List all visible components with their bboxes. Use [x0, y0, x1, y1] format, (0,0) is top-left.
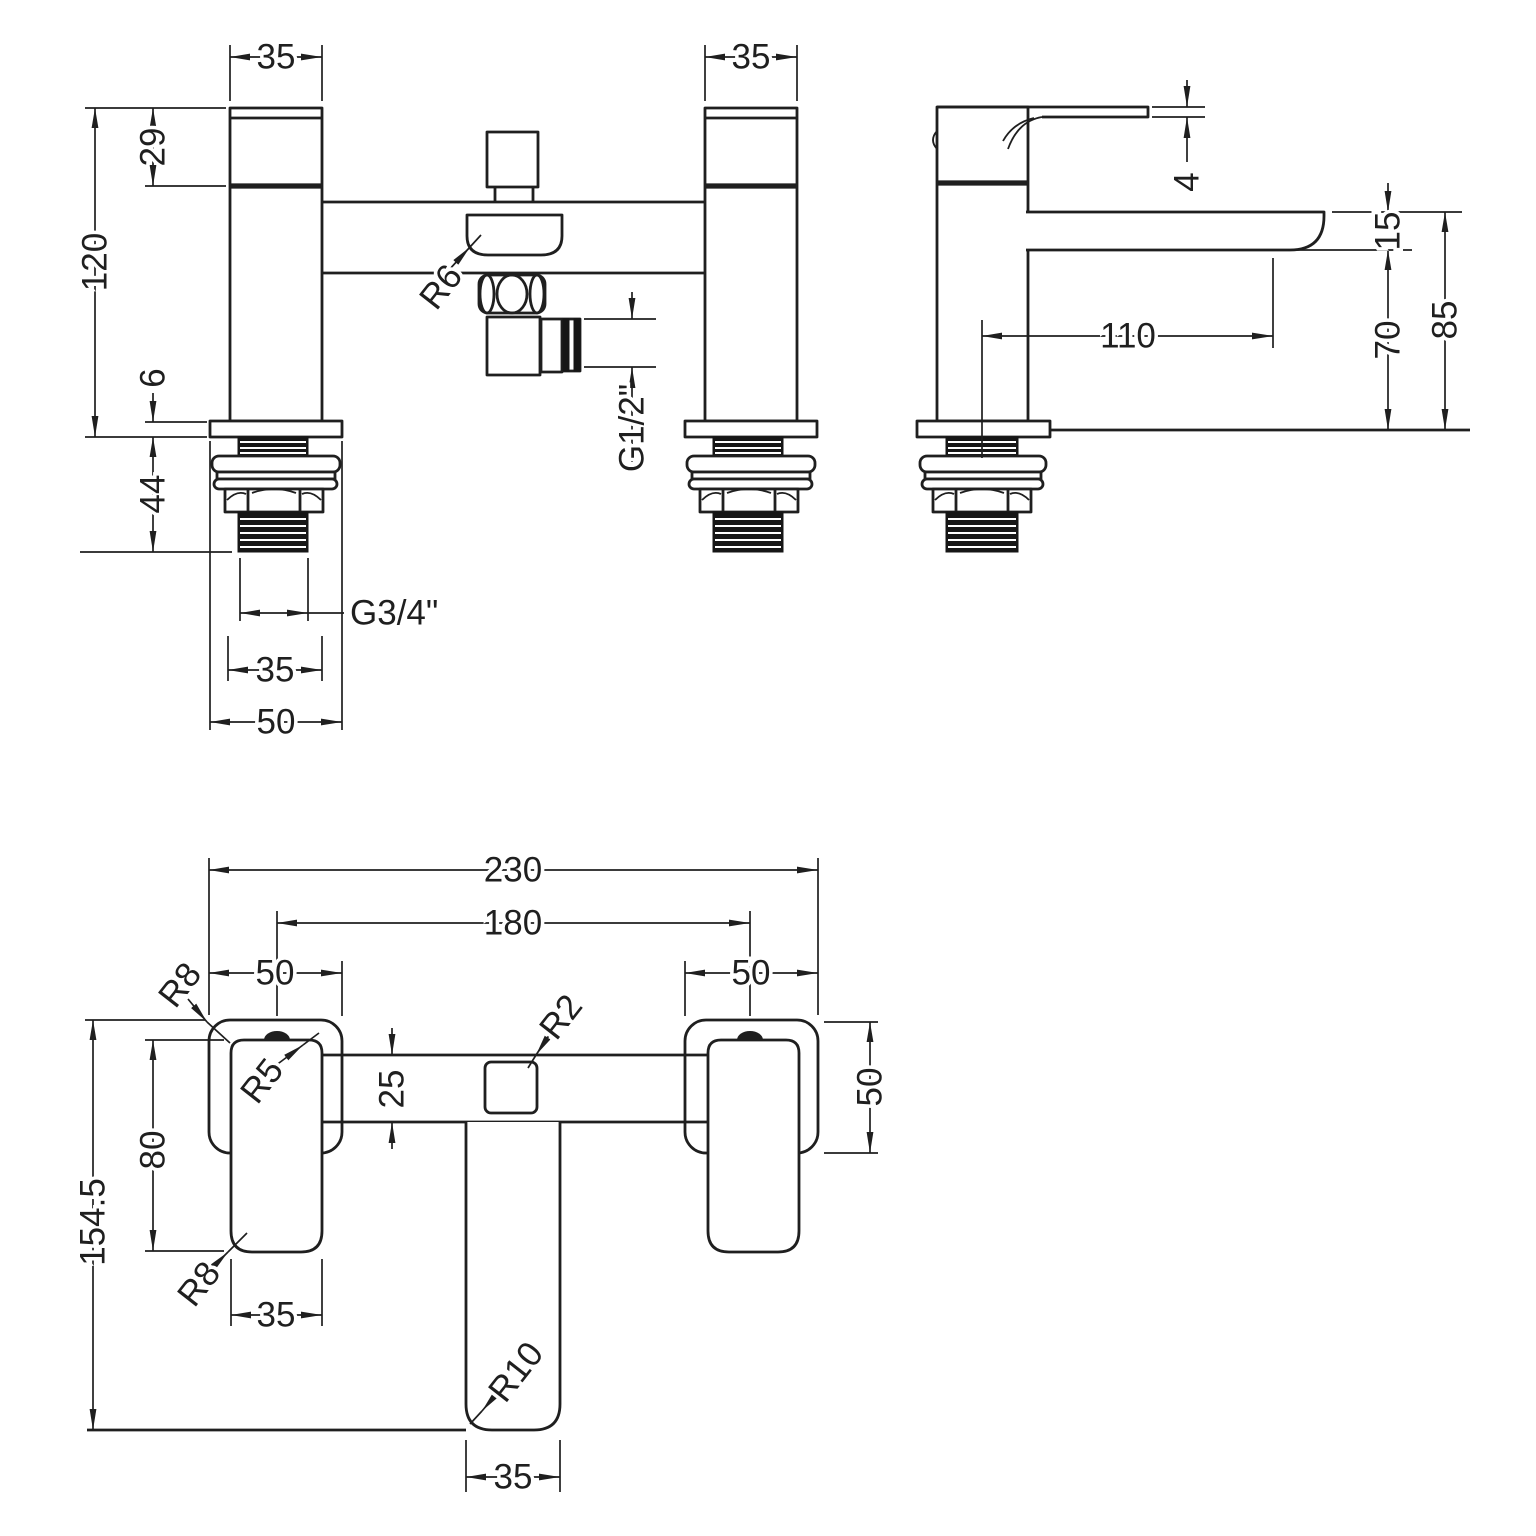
front-left-tail — [210, 421, 342, 552]
front-diverter-knob — [487, 132, 538, 202]
dim-plan-overall-width: 230 — [484, 851, 542, 890]
drawing-page: 35 35 29 120 6 44 G3/4" 35 50 R6 G1/2" 4… — [0, 0, 1536, 1536]
label-plan-escutcheon-radius-top: R8 — [151, 955, 209, 1014]
dim-plan-spout-width: 35 — [494, 1458, 533, 1497]
dim-plan-right-escutcheon-width: 50 — [732, 954, 771, 993]
dim-side-spout-underside-height: 70 — [1369, 321, 1408, 360]
dim-side-spout-top-height: 85 — [1426, 301, 1465, 340]
label-front-hose-thread: G1/2" — [613, 384, 652, 472]
technical-drawing-canvas: 35 35 29 120 6 44 G3/4" 35 50 R6 G1/2" 4… — [0, 0, 1536, 1536]
front-right-tail — [685, 421, 817, 552]
front-right-leg — [705, 108, 797, 421]
dim-side-spout-reach: 110 — [1100, 317, 1156, 356]
side-body — [933, 107, 1028, 421]
dim-front-right-body-width: 35 — [732, 38, 771, 77]
plan-right-handle — [708, 1031, 799, 1252]
side-spout — [1026, 212, 1324, 250]
dim-front-left-body-width: 35 — [257, 38, 296, 77]
dim-front-height-to-deck: 120 — [76, 233, 115, 291]
plan-diverter-button — [485, 1062, 537, 1113]
dim-front-deck-plate-thickness: 6 — [134, 368, 173, 387]
dim-plan-handle-length: 80 — [134, 1131, 173, 1170]
front-left-leg — [230, 108, 322, 421]
dim-front-handle-height: 29 — [134, 128, 173, 167]
dim-front-flange-width: 50 — [257, 703, 296, 742]
front-outlet-housing — [467, 215, 562, 255]
side-tail — [917, 421, 1050, 552]
label-plan-escutcheon-radius-bottom: R8 — [170, 1254, 228, 1313]
dim-plan-handle-width: 35 — [257, 1296, 296, 1335]
label-plan-diverter-radius: R2 — [532, 987, 590, 1046]
label-front-outlet-radius: R6 — [412, 257, 470, 316]
dim-side-handle-thickness: 4 — [1168, 172, 1207, 191]
dim-plan-left-escutcheon-width: 50 — [256, 954, 295, 993]
dim-plan-overall-depth: 154.5 — [74, 1178, 113, 1266]
front-view — [210, 108, 817, 552]
dim-plan-hole-centres: 180 — [484, 904, 542, 943]
plan-view — [87, 1020, 818, 1430]
front-hose-connector — [479, 275, 580, 375]
label-front-shank-thread: G3/4" — [350, 594, 438, 633]
dim-front-shank-width: 35 — [256, 651, 295, 690]
dim-front-shank-length: 44 — [134, 475, 173, 514]
dim-side-spout-thickness: 15 — [1369, 212, 1408, 251]
dim-plan-escutcheon-depth: 50 — [851, 1068, 890, 1107]
dim-plan-body-bar-width: 25 — [373, 1070, 412, 1109]
